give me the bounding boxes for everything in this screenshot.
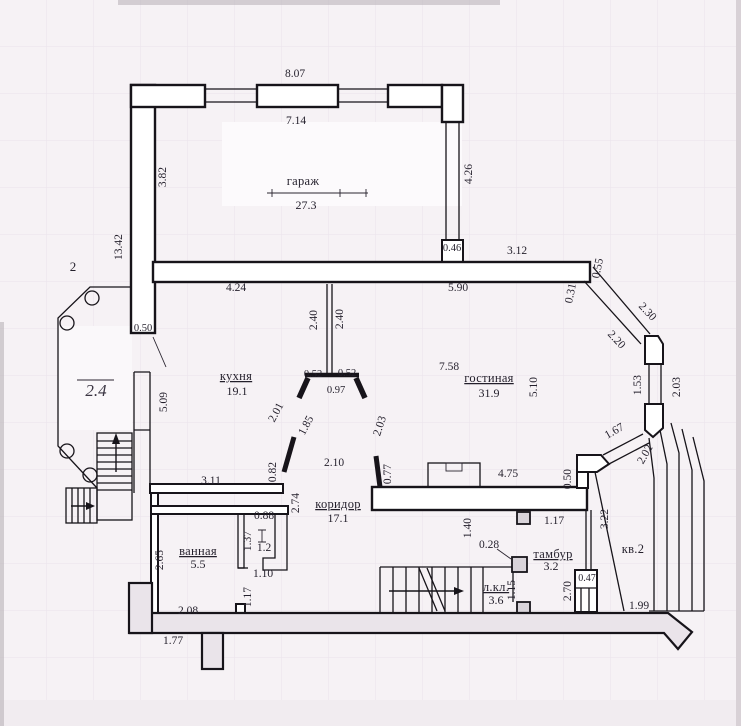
dimension-label: 8.07	[285, 68, 305, 80]
dimension-label: 1.2	[257, 542, 272, 554]
annotation: 2	[70, 259, 77, 274]
scan-left-edge	[0, 322, 4, 726]
room-area: 3.2	[544, 559, 559, 573]
south-chimney-stub	[202, 633, 223, 669]
dimension-label: 2.03	[671, 377, 683, 397]
dimension-label: 4.75	[498, 468, 518, 480]
dimension-label: 2.40	[308, 310, 320, 330]
scan-bottom-band	[0, 700, 741, 726]
dimension-label: 2.40	[334, 309, 346, 329]
dimension-label: 2.70	[562, 581, 574, 601]
dimension-label: 3.11	[201, 475, 221, 487]
dimension-label: 2.74	[290, 493, 302, 513]
corner-block-1	[645, 336, 663, 364]
dimension-label: 1.17	[242, 587, 254, 607]
tambur-pillar-2	[517, 602, 530, 613]
garage-west-wall	[131, 85, 155, 333]
dimension-label: 2.10	[324, 457, 344, 469]
room-area: 17.1	[328, 511, 349, 525]
room-name: гостиная	[464, 371, 513, 385]
dimension-label: 7.14	[286, 115, 306, 127]
dimension-label: 0.82	[267, 462, 279, 482]
southwest-corner-block	[129, 583, 152, 633]
scan-top-smudge	[118, 0, 500, 5]
dimension-label: 1.40	[462, 518, 474, 538]
dimension-label: 1.53	[632, 375, 644, 395]
dimension-label: 0.46	[443, 243, 461, 254]
dimension-label: 0.50	[562, 469, 574, 489]
dimension-label: 2.08	[178, 605, 198, 617]
dimension-label: 3.22	[599, 509, 611, 529]
room-area: 19.1	[227, 384, 248, 398]
dimension-label: 1.10	[253, 568, 273, 580]
dimension-label: 13.42	[113, 234, 125, 260]
room-name: л.кл.	[483, 580, 509, 594]
dimension-label: 4.26	[463, 164, 475, 184]
dimension-label: 1.17	[544, 515, 564, 527]
erasure-porch	[58, 326, 132, 430]
dimension-label: 0.28	[479, 539, 499, 551]
dimension-label: 0.50	[134, 323, 152, 334]
garage-south-living-north-wall	[153, 262, 590, 282]
dimension-label: 5.09	[158, 392, 170, 412]
dimension-label: 1.77	[163, 635, 183, 647]
dimension-label: 5.10	[528, 377, 540, 397]
floor-plan-svg: 8.077.143.824.2613.424.245.900.463.120.5…	[0, 0, 741, 726]
dimension-label: 0.97	[327, 385, 345, 396]
dimension-label: 0.52	[304, 369, 322, 380]
room-area: 31.9	[479, 386, 500, 400]
room-name: гараж	[287, 174, 320, 188]
garage-north-wall-right	[388, 85, 442, 107]
dimension-label: 1.99	[629, 600, 649, 612]
living-south-wall-band	[372, 487, 587, 510]
dimension-label: 3.82	[157, 167, 169, 187]
dimension-label: 7.58	[439, 361, 459, 373]
wall-stub-east	[577, 472, 588, 488]
garage-north-wall-left	[131, 85, 205, 107]
dimension-label: 3.12	[507, 245, 527, 257]
room-area: 27.3	[296, 198, 317, 212]
dimension-label: 5.90	[448, 282, 468, 294]
garage-north-wall-center	[257, 85, 338, 107]
dimension-label: 0.47	[578, 573, 596, 584]
dimension-label: 4.24	[226, 282, 246, 294]
dimension-label: 0.88	[254, 510, 274, 522]
room-name: кв.2	[622, 542, 645, 556]
room-area: 5.5	[191, 557, 206, 571]
dimension-label: 1.37	[242, 531, 254, 551]
room-name: ванная	[179, 544, 217, 558]
scan-right-edge	[736, 0, 741, 726]
dimension-label: 2.65	[154, 550, 166, 570]
room-name: коридор	[315, 497, 361, 511]
tambur-pillar-1	[512, 557, 527, 572]
dimension-label: 0.77	[382, 464, 394, 484]
dimension-label: 0.52	[338, 368, 356, 379]
room-name: кухня	[220, 369, 252, 383]
garage-northeast-block	[442, 85, 463, 122]
scanned-floor-plan-page: 8.077.143.824.2613.424.245.900.463.120.5…	[0, 0, 741, 726]
wall-pier	[517, 512, 530, 524]
annotation: 2.4	[85, 381, 107, 400]
room-area: 3.6	[489, 593, 504, 607]
